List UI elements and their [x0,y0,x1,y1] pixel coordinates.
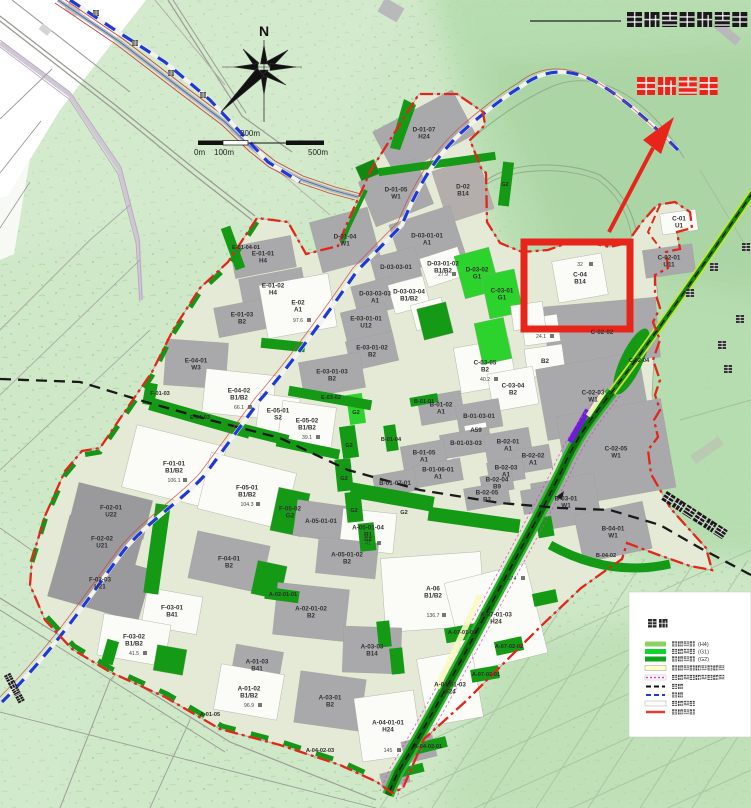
svg-text:N: N [259,23,269,39]
svg-text:C-03-04: C-03-04 [502,383,525,390]
svg-text:B1/B2: B1/B2 [238,492,256,499]
svg-text:D-02: D-02 [456,184,470,191]
svg-text:A-02-01-02: A-02-01-02 [295,606,327,613]
svg-text:E-03-01-02: E-03-01-02 [356,345,388,352]
svg-text:B1/B2: B1/B2 [230,395,248,402]
svg-text:200m: 200m [240,129,260,138]
svg-text:D-01-07: D-01-07 [413,127,436,134]
svg-text:F-03-01: F-03-01 [161,605,184,612]
svg-text:B2: B2 [326,702,335,709]
svg-text:32: 32 [577,262,583,268]
svg-text:40.2: 40.2 [480,377,490,383]
svg-text:H24: H24 [444,689,456,696]
svg-text:D-03-03-03: D-03-03-03 [359,291,391,298]
svg-text:F-02-02: F-02-02 [91,536,114,543]
svg-text:E-05-01: E-05-01 [267,408,290,415]
svg-text:A59: A59 [470,427,482,434]
svg-text:H4: H4 [259,258,268,265]
svg-text:A-05-01-04: A-05-01-04 [352,525,384,532]
svg-text:U21: U21 [96,543,108,550]
svg-text:B1/B2: B1/B2 [424,593,442,600]
svg-text:B1/B2: B1/B2 [400,296,418,303]
svg-text:E-02: E-02 [291,300,305,307]
svg-text:W1: W1 [391,194,401,201]
svg-text:A1: A1 [420,457,429,464]
svg-text:E-04-02: E-04-02 [228,388,251,395]
svg-text:H4: H4 [269,290,278,297]
svg-text:A1: A1 [371,298,380,305]
svg-text:G1: G1 [473,274,482,281]
svg-text:B-03-01: B-03-01 [555,496,578,503]
svg-text:W1: W1 [611,453,621,460]
svg-text:C-04: C-04 [573,272,587,279]
svg-text:B-01-06-01: B-01-06-01 [422,467,454,474]
svg-text:E-01-02: E-01-02 [262,283,285,290]
svg-text:27.9: 27.9 [438,272,448,278]
svg-text:U22: U22 [105,512,117,519]
svg-text:24.1: 24.1 [536,334,546,340]
svg-text:E-04-01: E-04-01 [185,358,208,365]
svg-text:B1/B2: B1/B2 [240,693,258,700]
svg-text:D-03-02: D-03-02 [466,267,489,274]
svg-text:A1: A1 [294,307,303,314]
svg-text:B2: B2 [368,352,377,359]
svg-text:A-07-02-01: A-07-02-01 [472,672,500,678]
svg-text:H24: H24 [382,727,394,734]
svg-text:B-01-04: B-01-04 [381,437,402,443]
svg-text:B2: B2 [481,367,490,374]
svg-text:C-02-03: C-02-03 [582,390,605,397]
svg-text:C-02-05: C-02-05 [605,446,628,453]
svg-text:B-01-01: B-01-01 [414,399,434,405]
svg-text:B14: B14 [574,279,586,286]
svg-text:B1/B2: B1/B2 [125,641,143,648]
svg-text:B2: B2 [343,559,352,566]
svg-text:A1: A1 [437,409,446,416]
svg-text:B14: B14 [366,651,378,658]
svg-text:0m: 0m [194,148,205,157]
svg-text:E-01-04-01: E-01-04-01 [232,245,260,251]
svg-text:C-01: C-01 [672,216,686,223]
svg-text:B-04-01: B-04-01 [602,526,625,533]
svg-text:W3: W3 [191,365,201,372]
svg-text:106.1: 106.1 [168,478,181,484]
svg-text:A1: A1 [434,474,443,481]
svg-text:(H4): (H4) [698,642,709,648]
svg-text:A-01-05: A-01-05 [200,712,220,718]
svg-text:E-05-02: E-05-02 [296,418,319,425]
svg-text:145: 145 [384,748,393,754]
svg-text:A-03-01: A-03-01 [319,695,342,702]
svg-text:H24: H24 [490,619,502,626]
svg-text:39.1: 39.1 [302,435,312,441]
svg-text:C-03-05: C-03-05 [474,360,497,367]
svg-text:100m: 100m [214,148,234,157]
svg-text:B-01-03-01: B-01-03-01 [463,413,495,420]
svg-text:G2: G2 [350,508,357,514]
svg-text:500m: 500m [308,148,328,157]
svg-text:A-01-03: A-01-03 [246,659,269,666]
svg-text:A-02-01-01: A-02-01-01 [269,592,297,598]
svg-text:U21: U21 [94,584,106,591]
svg-text:B1/B2: B1/B2 [298,425,316,432]
svg-text:D-03-01-01: D-03-01-01 [411,233,443,240]
svg-text:A-04-01-03: A-04-01-03 [434,682,466,689]
svg-text:U12: U12 [360,323,372,330]
svg-text:A-07-01-02: A-07-01-02 [448,630,476,636]
svg-text:G2: G2 [352,410,359,416]
svg-text:B2: B2 [541,358,550,365]
svg-text:B-01-07-01: B-01-07-01 [379,480,411,487]
svg-text:U11: U11 [663,262,675,269]
svg-text:E-04-03: E-04-03 [190,415,210,421]
svg-text:(G2): (G2) [698,657,709,663]
svg-text:G2: G2 [286,513,295,520]
svg-text:B-02-04: B-02-04 [486,477,509,484]
svg-text:A-04-01-01: A-04-01-01 [372,720,404,727]
svg-text:D-03-03-04: D-03-03-04 [393,289,425,296]
svg-text:(G1): (G1) [698,650,709,656]
svg-text:C-02-01: C-02-01 [658,255,681,262]
svg-text:U1: U1 [675,223,684,230]
svg-text:H24: H24 [418,134,430,141]
svg-text:B-02-02: B-02-02 [522,453,545,460]
svg-text:W1: W1 [608,533,618,540]
svg-text:A1: A1 [423,240,432,247]
svg-text:B2: B2 [307,613,316,620]
svg-text:B41: B41 [251,666,263,673]
svg-text:F-05-02: F-05-02 [279,506,302,513]
svg-text:F-01-01: F-01-01 [163,461,186,468]
svg-text:B2: B2 [238,319,247,326]
svg-text:97.6: 97.6 [293,318,303,324]
svg-text:F-05-01: F-05-01 [236,485,259,492]
svg-text:B41: B41 [166,612,178,619]
svg-text:C-02-02: C-02-02 [591,329,614,336]
svg-text:136.7: 136.7 [427,613,440,619]
svg-text:E-01-03: E-01-03 [231,312,254,319]
svg-text:C-02-04: C-02-04 [629,358,650,364]
svg-text:B-02-03: B-02-03 [495,465,518,472]
svg-text:F-02-03: F-02-03 [89,577,112,584]
svg-text:D-01-05: D-01-05 [385,187,408,194]
svg-text:A-03-03: A-03-03 [361,644,384,651]
svg-text:F-01-03: F-01-03 [150,391,170,397]
svg-text:96.9: 96.9 [244,703,254,709]
svg-text:W1: W1 [561,503,571,510]
svg-text:C-03-01: C-03-01 [491,288,514,295]
svg-text:A1: A1 [529,460,538,467]
svg-text:B1/B2: B1/B2 [165,468,183,475]
svg-text:G1: G1 [498,295,507,302]
svg-text:41: 41 [365,541,371,547]
svg-text:B2: B2 [225,563,234,570]
svg-text:B-01-03-03: B-01-03-03 [450,440,482,447]
svg-text:B2: B2 [328,376,337,383]
svg-text:B2: B2 [509,390,518,397]
svg-text:A-07-01-03: A-07-01-03 [480,612,512,619]
svg-text:B14: B14 [457,191,469,198]
svg-text:A-04-02-01: A-04-02-01 [414,744,442,750]
svg-text:W1: W1 [588,397,598,404]
svg-text:A-06: A-06 [426,586,440,593]
svg-text:W1: W1 [340,241,350,248]
svg-text:S2: S2 [274,415,282,422]
svg-text:B-01-05: B-01-05 [413,450,436,457]
svg-text:D-03-03-01: D-03-03-01 [380,264,412,271]
svg-text:E-03-01-01: E-03-01-01 [350,316,382,323]
svg-text:G2: G2 [345,443,352,449]
svg-text:66.1: 66.1 [234,405,244,411]
svg-text:D-03-01-02: D-03-01-02 [427,261,459,268]
svg-text:A-05-01-02: A-05-01-02 [331,552,363,559]
svg-text:F-03-02: F-03-02 [123,634,146,641]
svg-text:E-03-01-03: E-03-01-03 [316,369,348,376]
svg-text:A-04-02-03: A-04-02-03 [306,748,334,754]
svg-text:174: 174 [508,576,517,582]
svg-text:G2: G2 [501,182,508,188]
svg-text:D-01-04: D-01-04 [334,234,357,241]
svg-text:A-01-02: A-01-02 [238,686,261,693]
svg-text:F-02-01: F-02-01 [100,505,123,512]
svg-text:E-03-02: E-03-02 [321,395,341,401]
svg-text:A-07-02-02: A-07-02-02 [495,644,523,650]
svg-text:B-02-01: B-02-01 [497,439,520,446]
svg-text:A1: A1 [504,446,513,453]
svg-text:B-04-02: B-04-02 [596,553,616,559]
svg-text:F-04-01: F-04-01 [218,556,241,563]
svg-text:G2: G2 [400,510,407,516]
svg-text:104.3: 104.3 [241,502,254,508]
svg-text:A-05-01-01: A-05-01-01 [305,518,337,525]
svg-text:B-02-05: B-02-05 [476,490,499,497]
svg-text:G2: G2 [340,476,347,482]
svg-text:41.5: 41.5 [129,651,139,657]
svg-text:B2: B2 [483,497,492,504]
svg-text:E-01-01: E-01-01 [252,251,275,258]
